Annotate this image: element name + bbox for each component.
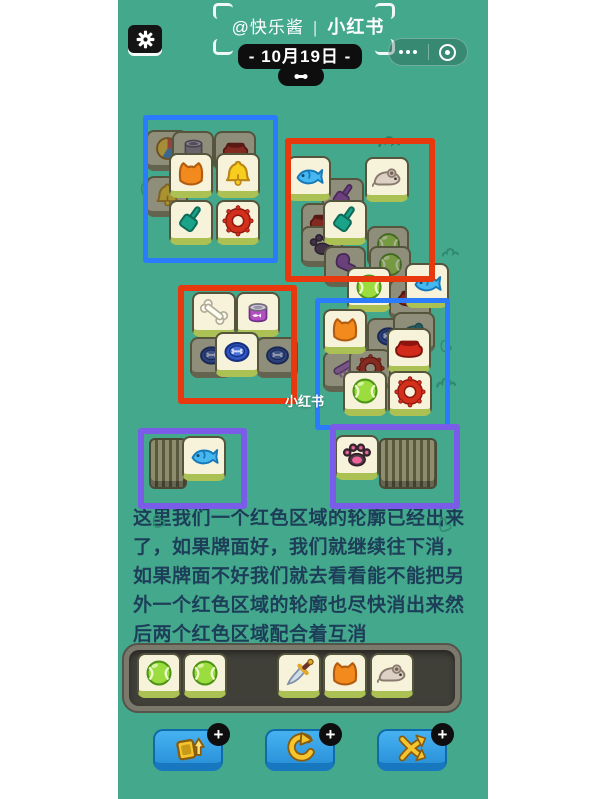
tile-ball: [137, 653, 181, 698]
cat-icon: [328, 656, 362, 690]
shuffle-button[interactable]: +: [377, 729, 447, 771]
settings-button[interactable]: [128, 25, 162, 53]
target-icon: [439, 44, 456, 61]
dot-icon: [399, 50, 403, 54]
hand-doodle: [436, 516, 454, 539]
bone-decoration: [278, 66, 324, 86]
xiaohongshu-watermark: 小红书: [285, 391, 324, 410]
mouse-icon: [375, 656, 409, 690]
undo-button[interactable]: +: [265, 729, 335, 771]
dot-icon: [413, 50, 417, 54]
highlight-box-blue-mid-right: [315, 298, 450, 430]
highlight-box-red-mid-left: [178, 285, 297, 404]
undo-icon: [282, 729, 319, 766]
ball-icon: [142, 656, 176, 690]
plus-badge: +: [431, 723, 454, 746]
ball-icon: [188, 656, 222, 690]
gear-icon: [135, 29, 156, 50]
minimize-button[interactable]: [429, 39, 468, 65]
dot-icon: [406, 50, 410, 54]
page-canvas: @快乐酱|小红书 - 10月19日 - 小红书 这里我们一个红色区域的轮廓已经出…: [0, 0, 600, 799]
shuffle-icon: [394, 729, 431, 766]
hand-doodle: [150, 512, 168, 535]
plus-badge: +: [319, 723, 342, 746]
plus-badge: +: [207, 723, 230, 746]
author-handle: @快乐酱: [232, 18, 304, 37]
miniprogram-capsule: [388, 38, 468, 66]
brand-name: 小红书: [327, 17, 384, 37]
more-button[interactable]: [389, 39, 428, 65]
byline-separator: |: [313, 18, 318, 37]
byline: @快乐酱|小红书: [178, 13, 438, 39]
frame-corner: [213, 39, 233, 55]
highlight-box-red-top-right: [285, 138, 435, 282]
moveout-button[interactable]: +: [153, 729, 223, 771]
phone-screenshot: @快乐酱|小红书 - 10月19日 - 小红书 这里我们一个红色区域的轮廓已经出…: [118, 0, 488, 799]
knife-icon: [282, 656, 316, 690]
moveout-icon: [170, 729, 207, 766]
toolbar: + + +: [118, 729, 488, 793]
tile-knife: [277, 653, 321, 698]
highlight-box-purple-right: [330, 424, 460, 509]
highlight-box-blue-top-left: [143, 115, 278, 263]
tile-mouse: [370, 653, 414, 698]
tile-ball: [183, 653, 227, 698]
tile-cat: [323, 653, 367, 698]
bone-icon: [286, 69, 316, 84]
highlight-box-purple-left: [138, 428, 247, 509]
